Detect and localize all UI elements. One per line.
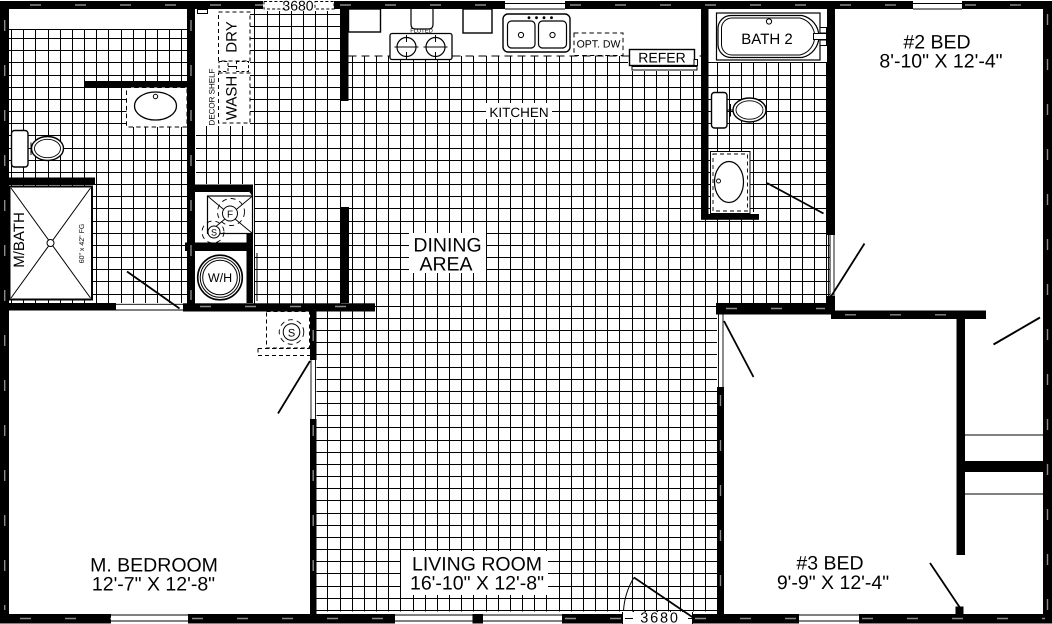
- svg-text:REFER: REFER: [638, 50, 685, 66]
- svg-text:S: S: [211, 228, 217, 238]
- svg-text:S: S: [288, 328, 295, 340]
- svg-text:16'-10" X 12'-8": 16'-10" X 12'-8": [410, 573, 544, 595]
- svg-text:12'-7" X 12'-8": 12'-7" X 12'-8": [92, 574, 215, 596]
- svg-text:9'-9" X 12'-4": 9'-9" X 12'-4": [777, 572, 889, 594]
- svg-text:WASH: WASH: [224, 76, 241, 120]
- svg-text:KITCHEN: KITCHEN: [489, 105, 548, 120]
- svg-text:3680: 3680: [282, 0, 313, 14]
- svg-text:DECOR SHELF: DECOR SHELF: [208, 68, 217, 125]
- svg-text:FLUTED: FLUTED: [410, 29, 433, 35]
- svg-text:M/BATH: M/BATH: [11, 212, 28, 268]
- svg-text:8'-10" X 12'-4": 8'-10" X 12'-4": [879, 51, 1002, 73]
- svg-text:BATH 2: BATH 2: [741, 31, 792, 48]
- svg-text:OPT. DW: OPT. DW: [577, 39, 621, 51]
- svg-text:AREA: AREA: [419, 254, 472, 276]
- svg-text:DRY: DRY: [224, 21, 241, 52]
- svg-text:F: F: [227, 210, 233, 221]
- svg-text:3680: 3680: [640, 611, 679, 624]
- svg-text:60" x 42" FG: 60" x 42" FG: [79, 224, 86, 264]
- svg-text:W/H: W/H: [208, 271, 232, 285]
